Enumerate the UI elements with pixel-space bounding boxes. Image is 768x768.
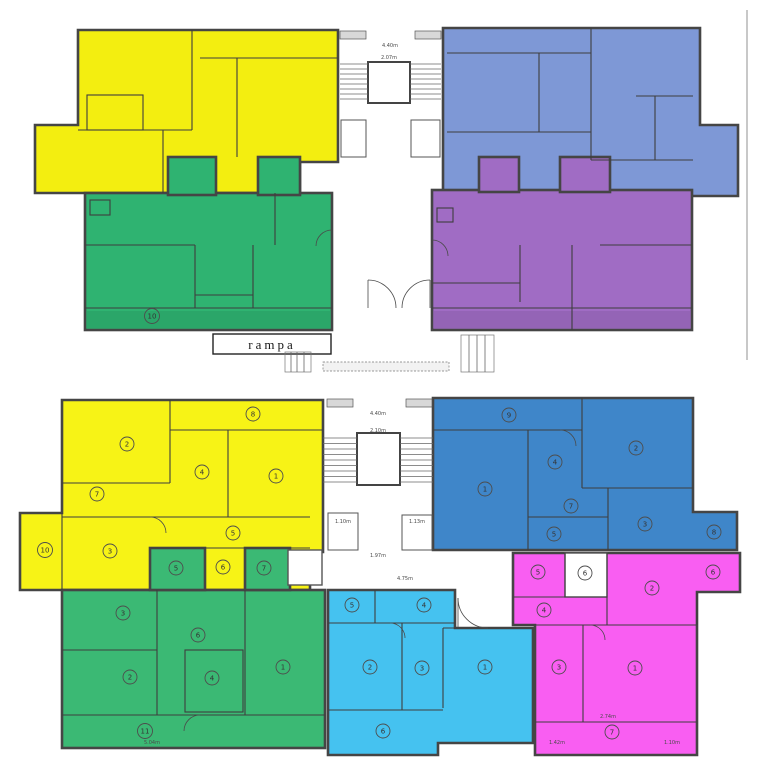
dim-stair-well-bottom: 2.10m [370, 428, 386, 434]
svg-text:9: 9 [507, 412, 511, 420]
svg-text:2: 2 [368, 664, 372, 672]
floor-plan-page: 4.40m 2.07m rampa 10 [0, 0, 768, 768]
svg-text:6: 6 [221, 564, 226, 572]
white-room-yellow [288, 550, 322, 585]
svg-text:5: 5 [552, 531, 556, 539]
svg-text:2: 2 [125, 441, 129, 449]
svg-text:11: 11 [141, 728, 150, 736]
svg-text:2: 2 [650, 585, 654, 593]
dim-magenta-right: 1.10m [664, 740, 680, 746]
svg-text:5: 5 [231, 530, 235, 538]
svg-text:7: 7 [610, 729, 614, 737]
dim-green-bottom: 5.04m [144, 740, 160, 746]
ramp: rampa [213, 334, 331, 354]
svg-text:8: 8 [712, 529, 716, 537]
dim-magenta-left: 1.42m [549, 740, 565, 746]
svg-text:3: 3 [643, 521, 647, 529]
svg-text:6: 6 [196, 632, 201, 640]
apartment-bottom-cyan [328, 590, 533, 755]
entry-walkway [323, 362, 449, 371]
dim-stair-width-bottom: 4.40m [370, 411, 386, 417]
apartment-bottom-magenta [513, 553, 740, 755]
svg-text:6: 6 [583, 570, 588, 578]
svg-text:1: 1 [281, 664, 285, 672]
svg-text:10: 10 [148, 313, 157, 321]
svg-text:7: 7 [569, 503, 573, 511]
exterior-steps-left [285, 352, 311, 372]
svg-text:4: 4 [200, 469, 205, 477]
svg-text:4: 4 [210, 675, 215, 683]
stair-core-bottom: 4.40m 2.10m 1.10m 1.13m 1.97m [323, 399, 433, 559]
terrace-strip-purple [434, 311, 690, 328]
svg-text:1: 1 [633, 665, 637, 673]
dim-magenta-mid: 2.74m [600, 714, 616, 720]
svg-text:5: 5 [174, 565, 178, 573]
svg-text:4: 4 [542, 607, 547, 615]
svg-text:6: 6 [711, 569, 716, 577]
dim-closet-left: 1.10m [335, 519, 351, 525]
apartment-bottom-blue [433, 398, 737, 550]
svg-text:5: 5 [536, 569, 540, 577]
svg-text:6: 6 [381, 728, 386, 736]
svg-text:4: 4 [422, 602, 427, 610]
svg-text:1: 1 [274, 473, 278, 481]
floor-plans-canvas: 4.40m 2.07m rampa 10 [0, 0, 768, 768]
bottom-floor-plan: 4.40m 2.10m 1.10m 1.13m 1.97m 4.75m 5.04… [20, 398, 740, 755]
svg-text:7: 7 [95, 491, 99, 499]
svg-text:7: 7 [262, 565, 266, 573]
terrace-strip-green [87, 311, 330, 328]
svg-text:5: 5 [350, 602, 354, 610]
svg-text:10: 10 [41, 547, 50, 555]
exterior-steps-right [461, 335, 494, 372]
svg-text:1: 1 [483, 486, 487, 494]
svg-text:3: 3 [420, 665, 424, 673]
dim-hall: 4.75m [397, 576, 413, 582]
svg-text:1: 1 [483, 664, 487, 672]
svg-text:2: 2 [128, 674, 132, 682]
svg-text:3: 3 [121, 610, 125, 618]
ramp-label: rampa [248, 337, 295, 352]
dim-stair-well-top: 2.07m [381, 55, 397, 61]
stair-core-top: 4.40m 2.07m [340, 31, 441, 157]
dim-stair-width-top: 4.40m [382, 43, 398, 49]
svg-text:3: 3 [557, 664, 561, 672]
entry-double-door-top [368, 280, 430, 308]
svg-text:3: 3 [108, 548, 112, 556]
svg-text:8: 8 [251, 411, 255, 419]
svg-text:2: 2 [634, 445, 638, 453]
top-floor-plan: 4.40m 2.07m rampa 10 [35, 10, 747, 372]
apartment-bottom-green [62, 590, 325, 748]
dim-closet-right: 1.13m [409, 519, 425, 525]
dim-landing: 1.97m [370, 553, 386, 559]
svg-text:4: 4 [553, 459, 558, 467]
